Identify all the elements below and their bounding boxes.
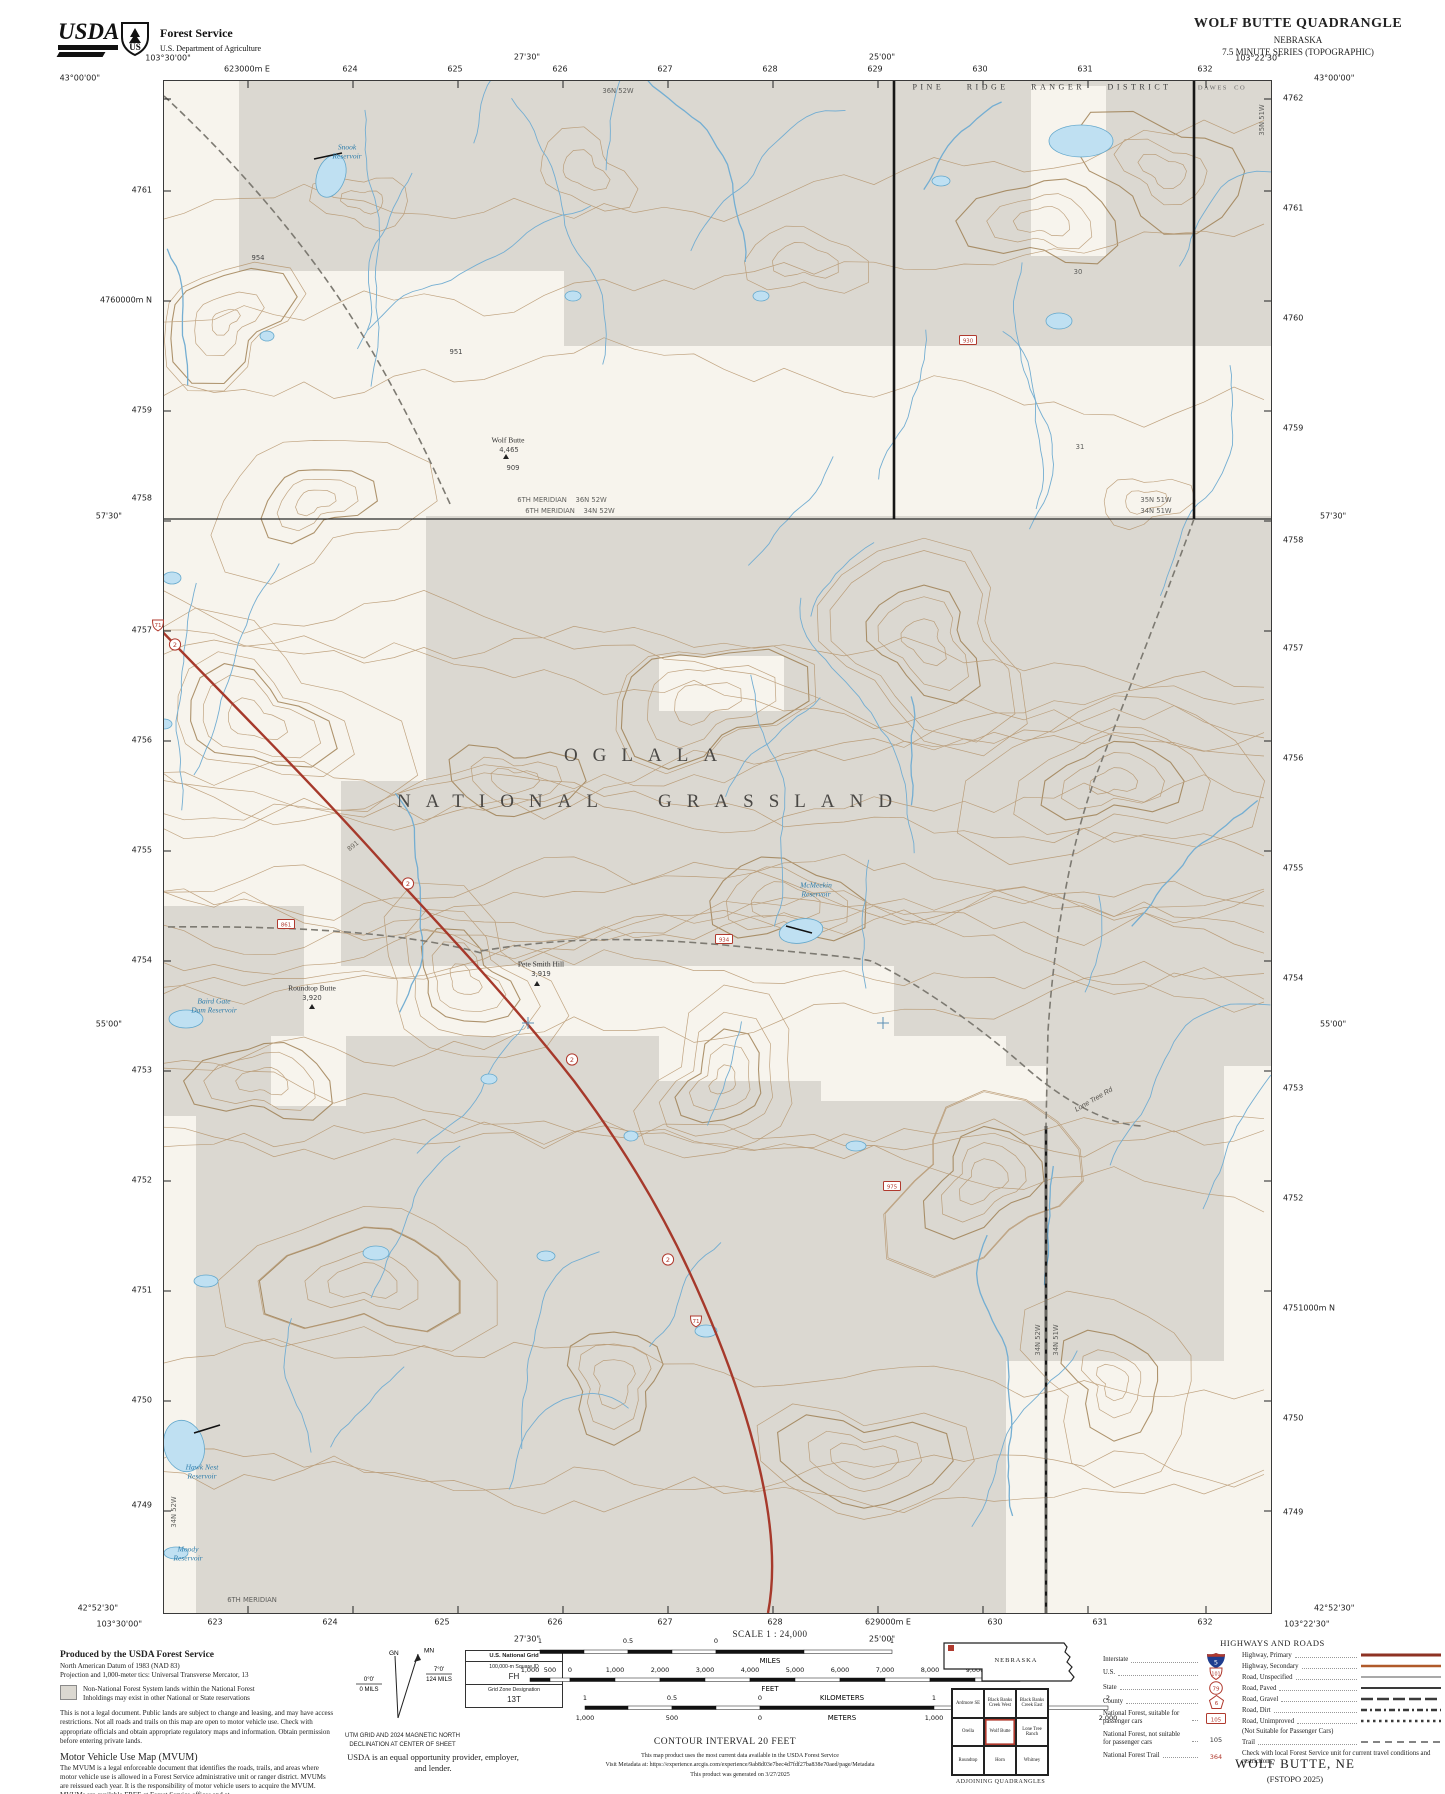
plain-icon: 105: [1201, 1734, 1231, 1744]
grid-edge-label: 630: [972, 65, 987, 74]
legend-label: National Forest, not suitable for passen…: [1103, 1731, 1189, 1747]
grid-edge-label: 632: [1197, 1618, 1212, 1627]
quadrangle-state: NEBRASKA: [1148, 35, 1445, 45]
svg-text:0: 0: [568, 1666, 572, 1674]
road-style-sample: [1360, 1652, 1442, 1660]
equal-opportunity-note: USDA is an equal opportunity provider, e…: [347, 1752, 519, 1774]
svg-text:79: 79: [1213, 1686, 1220, 1692]
usda-logo: USDA: [58, 20, 118, 57]
legend-leader: [1192, 1737, 1198, 1742]
grid-edge-label: 4761: [1283, 204, 1303, 213]
declination-caption-line: DECLINATION AT CENTER OF SHEET: [300, 1741, 505, 1750]
legend-label: Road, Gravel: [1242, 1696, 1278, 1704]
grid-edge-label: 4755: [132, 846, 152, 855]
grid-edge-label: 42°52'30": [1314, 1604, 1354, 1613]
land-status-legend: Non-National Forest System lands within …: [60, 1685, 334, 1703]
legend-label: Trail: [1242, 1739, 1255, 1747]
legend-row-shield: National Forest, not suitable for passen…: [1103, 1731, 1231, 1747]
sheet-name-block: WOLF BUTTE, NE (FSTOPO 2025): [1190, 1756, 1400, 1784]
grid-edge-label: 4761: [132, 186, 152, 195]
adjoining-quad-cell: Orella: [952, 1718, 984, 1747]
grid-edge-label: 630: [987, 1618, 1002, 1627]
grid-edge-label: 626: [547, 1618, 562, 1627]
grid-edge-label: 4758: [1283, 536, 1303, 545]
legend-row-shield: National Forest, suitable for passenger …: [1103, 1710, 1231, 1726]
svg-text:FEET: FEET: [761, 1685, 779, 1693]
grid-edge-label: 628: [762, 65, 777, 74]
svg-text:1: 1: [932, 1694, 936, 1702]
grid-edge-label: 4749: [1283, 1508, 1303, 1517]
svg-text:1,000: 1,000: [606, 1666, 625, 1674]
forest-service-shield-icon: US: [118, 20, 152, 63]
legend-leader: [1120, 1686, 1198, 1691]
legend-leader: [1274, 1709, 1357, 1714]
svg-text:6,000: 6,000: [831, 1666, 850, 1674]
grid-edge-label: 4760000m N: [100, 296, 152, 305]
svg-text:1,000: 1,000: [576, 1714, 595, 1722]
swatch-note-line: Inholdings may exist in other National o…: [83, 1694, 255, 1703]
svg-text:MILES: MILES: [760, 1657, 781, 1665]
legend-label: County: [1103, 1698, 1123, 1706]
grid-edge-label: 629000m E: [865, 1618, 911, 1627]
grid-edge-label: 4752: [132, 1176, 152, 1185]
grid-edge-label: 4762: [1283, 94, 1303, 103]
grid-edge-label: 4756: [132, 736, 152, 745]
legend-label: Highway, Secondary: [1242, 1663, 1299, 1671]
svg-text:6: 6: [1214, 1701, 1218, 1707]
svg-text:US: US: [129, 42, 141, 52]
metadata-line: Visit Metadata at: https://experience.ar…: [520, 1761, 960, 1770]
metadata-line: This map product uses the most current d…: [520, 1752, 960, 1761]
grid-edge-label: 57'30": [1320, 512, 1346, 521]
legend-label: Road, Unspecified: [1242, 1674, 1293, 1682]
svg-text:KILOMETERS: KILOMETERS: [820, 1694, 865, 1702]
svg-text:500: 500: [666, 1714, 678, 1722]
legend-label: U.S.: [1103, 1669, 1115, 1677]
svg-text:7°0': 7°0': [434, 1667, 444, 1673]
grid-edge-label: 624: [322, 1618, 337, 1627]
grid-edge-label: 4759: [1283, 424, 1303, 433]
topo-map: [163, 80, 1272, 1614]
adjoining-quadrangles-grid: Ardmore SEBlack Banks Creek WestBlack Ba…: [951, 1688, 1049, 1776]
fsbox-icon: 105: [1201, 1712, 1231, 1725]
adjoining-quad-cell: Ardmore SE: [952, 1689, 984, 1718]
legend-leader: [1302, 1665, 1357, 1670]
produced-by-block: Produced by the USDA Forest Service Nort…: [60, 1650, 334, 1794]
usda-wordmark: USDA: [58, 20, 118, 43]
state-locator-inset: NEBRASKA: [938, 1634, 1088, 1695]
legend-label: National Forest Trail: [1103, 1752, 1160, 1760]
svg-text:5,000: 5,000: [786, 1666, 805, 1674]
grid-edge-label: 627: [657, 65, 672, 74]
quadrangle-title: WOLF BUTTE QUADRANGLE: [1148, 16, 1445, 32]
legend-row-roadstyle: (Not Suitable for Passenger Cars): [1242, 1728, 1442, 1736]
metadata-line: This product was generated on 3/27/2025: [520, 1771, 960, 1780]
agency-block: Forest Service U.S. Department of Agricu…: [160, 26, 261, 53]
grid-edge-label: 25'00": [869, 53, 895, 62]
legal-disclaimer: This is not a legal document. Public lan…: [60, 1709, 334, 1745]
legend-leader: [1118, 1671, 1198, 1676]
topo-map-art: [164, 81, 1271, 1613]
grid-edge-label: 4754: [132, 956, 152, 965]
svg-text:3,000: 3,000: [696, 1666, 715, 1674]
svg-text:0: 0: [758, 1694, 762, 1702]
mvum-heading: Motor Vehicle Use Map (MVUM): [60, 1752, 334, 1763]
legend-label: Road, Dirt: [1242, 1707, 1271, 1715]
grid-edge-label: 4753: [132, 1066, 152, 1075]
grid-edge-label: 55'00": [96, 1020, 122, 1029]
grid-edge-label: 4757: [1283, 644, 1303, 653]
grid-edge-label: 623: [207, 1618, 222, 1627]
contour-interval-note: CONTOUR INTERVAL 20 FEET: [560, 1737, 890, 1747]
legend-leader: [1131, 1658, 1198, 1663]
grid-edge-label: 103°30'00": [96, 1620, 142, 1629]
svg-text:7,000: 7,000: [876, 1666, 895, 1674]
grid-edge-label: 624: [342, 65, 357, 74]
quadrangle-series: 7.5 MINUTE SERIES (TOPOGRAPHIC): [1148, 47, 1445, 57]
road-style-sample: [1360, 1696, 1442, 1704]
grid-edge-label: 625: [434, 1618, 449, 1627]
legend-row-roadstyle: Road, Dirt: [1242, 1707, 1442, 1715]
svg-text:101: 101: [1211, 1671, 1220, 1677]
grid-edge-label: 103°22'30": [1284, 1620, 1330, 1629]
svg-text:0.5: 0.5: [667, 1694, 677, 1702]
grid-edge-label: 43°00'00": [1314, 74, 1354, 83]
svg-text:GN: GN: [389, 1650, 399, 1657]
grid-edge-label: 4751: [132, 1286, 152, 1295]
svg-text:124 MILS: 124 MILS: [426, 1677, 452, 1683]
projection-line: Projection and 1,000-meter tics: Univers…: [60, 1671, 334, 1680]
agency-dept: U.S. Department of Agriculture: [160, 44, 261, 53]
grid-edge-label: 627: [657, 1618, 672, 1627]
adjoining-quad-cell: Black Banks Creek West: [984, 1689, 1016, 1718]
grid-edge-label: 103°30'00": [145, 54, 191, 63]
svg-text:2,000: 2,000: [651, 1666, 670, 1674]
adjoining-quad-cell: Horn: [984, 1746, 1016, 1775]
grid-edge-label: 632: [1197, 65, 1212, 74]
grid-edge-label: 57'30": [96, 512, 122, 521]
legend-row-roadstyle: Highway, Secondary: [1242, 1663, 1442, 1671]
grid-edge-label: 623000m E: [224, 65, 270, 74]
usda-logo-bar: [57, 52, 106, 57]
legend-row-roadstyle: Road, Unimproved: [1242, 1718, 1442, 1726]
legend-row-roadstyle: Road, Gravel: [1242, 1696, 1442, 1704]
grid-edge-label: 4751000m N: [1283, 1304, 1335, 1313]
county-icon: 6: [1201, 1694, 1231, 1710]
adjoining-quad-cell: Lone Tree Ranch: [1016, 1718, 1048, 1747]
svg-text:0.5: 0.5: [623, 1637, 633, 1645]
svg-text:1,000: 1,000: [521, 1666, 540, 1674]
non-nfs-land-swatch: [60, 1685, 77, 1700]
grid-edge-label: 4753: [1283, 1084, 1303, 1093]
grid-edge-label: 4757: [132, 626, 152, 635]
svg-text:1: 1: [538, 1637, 542, 1645]
grid-edge-label: 4749: [132, 1501, 152, 1510]
svg-text:1: 1: [583, 1694, 587, 1702]
map-sheet-page: USDA US Forest Service U.S. Department o…: [0, 0, 1445, 1794]
mvum-body: The MVUM is a legal enforceable document…: [60, 1764, 334, 1794]
legend-leader: [1279, 1687, 1357, 1692]
us-icon: 101: [1201, 1666, 1231, 1681]
svg-text:0: 0: [758, 1714, 762, 1722]
declination-caption: UTM GRID AND 2024 MAGNETIC NORTH DECLINA…: [300, 1732, 505, 1750]
grid-edge-label: 628: [767, 1618, 782, 1627]
legend-label: State: [1103, 1684, 1117, 1692]
adjoining-quadrangles-caption: ADJOINING QUADRANGLES: [928, 1779, 1073, 1785]
legend-leader: [1295, 1654, 1357, 1659]
adjoining-quad-current: Wolf Butte: [984, 1718, 1016, 1747]
svg-text:0 MILS: 0 MILS: [359, 1687, 378, 1693]
grid-edge-label: 4755: [1283, 864, 1303, 873]
legend-leader: [1258, 1741, 1357, 1746]
road-style-sample: [1360, 1707, 1442, 1715]
svg-text:500: 500: [544, 1666, 556, 1674]
legend-row-roadstyle: Road, Paved: [1242, 1685, 1442, 1693]
legend-label: National Forest, suitable for passenger …: [1103, 1710, 1189, 1726]
svg-text:71: 71: [154, 623, 162, 629]
adjoining-quad-cell: Roundtop: [952, 1746, 984, 1775]
grid-edge-label: 631: [1077, 65, 1092, 74]
grid-edge-label: 4758: [132, 494, 152, 503]
declination-caption-line: UTM GRID AND 2024 MAGNETIC NORTH: [300, 1732, 505, 1741]
legend-leader: [1296, 1676, 1357, 1681]
road-style-sample: [1360, 1718, 1442, 1726]
legend-label: Road, Unimproved: [1242, 1718, 1294, 1726]
grid-edge-label: 631: [1092, 1618, 1107, 1627]
usda-logo-bar: [58, 45, 118, 50]
declination-diagram: GN MN 0°0' 0 MILS 7°0' 124 MILS: [338, 1646, 466, 1724]
grid-edge-label: 4759: [132, 406, 152, 415]
road-style-sample: [1360, 1685, 1442, 1693]
svg-text:0: 0: [714, 1637, 718, 1645]
grid-edge-label: 27'30": [514, 53, 540, 62]
non-nfs-land-note: Non-National Forest System lands within …: [83, 1685, 255, 1703]
swatch-note-line: Non-National Forest System lands within …: [83, 1685, 255, 1694]
quad-location-marker: [948, 1645, 954, 1651]
road-style-sample: [1360, 1663, 1442, 1671]
adjoining-quad-cell: Black Banks Creek East: [1016, 1689, 1048, 1718]
legend-row-roadstyle: Highway, Primary: [1242, 1652, 1442, 1660]
grid-edge-label: 4750: [1283, 1414, 1303, 1423]
sheet-edition: (FSTOPO 2025): [1190, 1774, 1400, 1784]
grid-edge-label: 625: [447, 65, 462, 74]
legend-label: (Not Suitable for Passenger Cars): [1242, 1728, 1333, 1736]
legend-leader: [1192, 1716, 1198, 1721]
produced-by-line: Produced by the USDA Forest Service: [60, 1650, 334, 1660]
legend-leader: [1126, 1700, 1198, 1705]
road-style-sample: [1360, 1674, 1442, 1682]
svg-text:4,000: 4,000: [741, 1666, 760, 1674]
datum-line: North American Datum of 1983 (NAD 83): [60, 1662, 334, 1671]
legend-row-shield: County6: [1103, 1694, 1231, 1710]
svg-text:8,000: 8,000: [921, 1666, 940, 1674]
grid-edge-label: 55'00": [1320, 1020, 1346, 1029]
svg-text:NEBRASKA: NEBRASKA: [994, 1657, 1037, 1664]
legend-row-shield: U.S.101: [1103, 1666, 1231, 1681]
svg-text:METERS: METERS: [828, 1714, 857, 1722]
legend-leader: [1281, 1698, 1357, 1703]
sheet-name: WOLF BUTTE, NE: [1190, 1756, 1400, 1772]
sheet-title-block: WOLF BUTTE QUADRANGLE NEBRASKA 7.5 MINUT…: [1148, 16, 1445, 57]
legend-row-roadstyle: Trail: [1242, 1739, 1442, 1747]
svg-text:1,000: 1,000: [925, 1714, 944, 1722]
grid-edge-label: 4760: [1283, 314, 1303, 323]
agency-name: Forest Service: [160, 26, 261, 41]
legend-label: Road, Paved: [1242, 1685, 1276, 1693]
grid-edge-label: 42°52'30": [78, 1604, 118, 1613]
legend-label: Highway, Primary: [1242, 1652, 1292, 1660]
svg-text:MN: MN: [424, 1648, 434, 1655]
legend-leader: [1297, 1720, 1357, 1725]
metadata-notes: This map product uses the most current d…: [520, 1752, 960, 1780]
adjoining-quad-cell: Whitney: [1016, 1746, 1048, 1775]
grid-edge-label: 629: [867, 65, 882, 74]
grid-edge-label: 4752: [1283, 1194, 1303, 1203]
grid-edge-label: 4754: [1283, 974, 1303, 983]
svg-text:105: 105: [1210, 1736, 1222, 1744]
svg-text:1: 1: [890, 1637, 894, 1645]
grid-edge-label: 4756: [1283, 754, 1303, 763]
legend-title: HIGHWAYS AND ROADS: [1180, 1638, 1365, 1648]
grid-edge-label: 626: [552, 65, 567, 74]
legend-label: Interstate: [1103, 1656, 1128, 1664]
legend-row-roadstyle: Road, Unspecified: [1242, 1674, 1442, 1682]
grid-edge-label: 43°00'00": [60, 74, 100, 83]
road-style-sample: [1360, 1739, 1442, 1747]
svg-text:0°0': 0°0': [364, 1677, 374, 1683]
svg-text:105: 105: [1211, 1717, 1222, 1723]
grid-edge-label: 4750: [132, 1396, 152, 1405]
